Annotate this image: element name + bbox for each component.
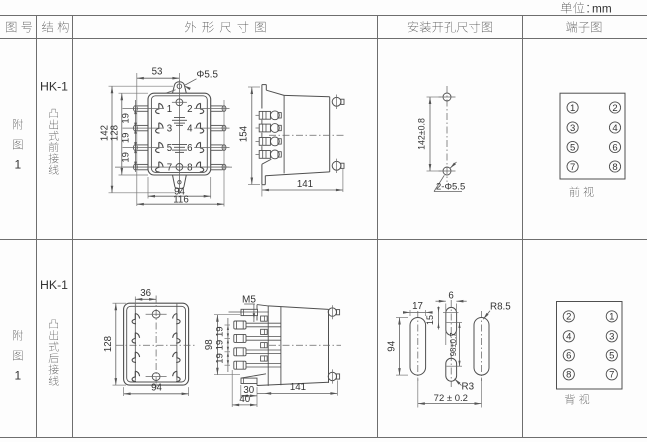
svg-text:1: 1 [167, 104, 172, 115]
svg-text:36: 36 [140, 288, 151, 299]
svg-text:2: 2 [612, 103, 617, 114]
svg-text:4: 4 [566, 332, 571, 343]
svg-text:141: 141 [297, 179, 313, 190]
svg-text:6: 6 [448, 290, 453, 301]
svg-text:7: 7 [609, 370, 614, 381]
svg-text:53: 53 [152, 67, 163, 78]
svg-text:HK-1: HK-1 [40, 278, 68, 292]
svg-text:19: 19 [215, 340, 226, 351]
svg-text:19: 19 [120, 152, 131, 163]
svg-text:5: 5 [570, 142, 575, 153]
svg-text:5: 5 [609, 351, 614, 362]
svg-text:19: 19 [215, 353, 226, 364]
svg-text:3: 3 [167, 123, 172, 134]
svg-text:2-Φ5.5: 2-Φ5.5 [436, 182, 465, 193]
svg-text:15: 15 [425, 315, 435, 325]
svg-text:128: 128 [103, 336, 114, 352]
svg-text:1: 1 [14, 369, 21, 383]
svg-text:8: 8 [612, 162, 617, 173]
svg-text:R3: R3 [462, 382, 475, 393]
svg-text:Φ5.5: Φ5.5 [197, 70, 219, 81]
svg-text:98±0.7: 98±0.7 [449, 333, 458, 357]
svg-text:116: 116 [173, 194, 188, 205]
svg-text:19: 19 [120, 113, 131, 124]
svg-text:19: 19 [120, 133, 131, 144]
svg-text:R8.5: R8.5 [490, 302, 511, 313]
svg-text:19: 19 [215, 326, 226, 337]
svg-text:7: 7 [167, 162, 172, 173]
svg-text:4: 4 [187, 123, 193, 134]
svg-text:4: 4 [612, 123, 617, 134]
svg-text:8: 8 [566, 370, 571, 381]
svg-text:mm: mm [592, 2, 612, 16]
svg-text:6: 6 [566, 351, 571, 362]
svg-text:3: 3 [570, 123, 575, 134]
svg-text:6: 6 [187, 143, 192, 154]
svg-text:HK-1: HK-1 [40, 80, 68, 94]
svg-text:6: 6 [612, 142, 617, 153]
svg-text:141: 141 [290, 382, 306, 393]
svg-text:154: 154 [239, 125, 250, 142]
svg-text:1: 1 [570, 103, 575, 114]
svg-text:8: 8 [187, 162, 192, 173]
svg-text:142±0.8: 142±0.8 [417, 118, 427, 150]
svg-text:2: 2 [566, 312, 571, 323]
svg-text:3: 3 [609, 332, 614, 343]
svg-text:128: 128 [109, 125, 120, 141]
svg-text:98: 98 [204, 339, 215, 350]
svg-text:94: 94 [387, 340, 398, 351]
svg-text:72 ± 0.2: 72 ± 0.2 [434, 393, 468, 404]
svg-text:5: 5 [167, 143, 172, 154]
svg-text:7: 7 [570, 162, 575, 173]
svg-text:1: 1 [609, 312, 614, 323]
svg-text:94: 94 [151, 382, 162, 393]
svg-text:1: 1 [14, 158, 21, 172]
svg-text:17: 17 [412, 301, 423, 312]
svg-text:2: 2 [187, 104, 192, 115]
